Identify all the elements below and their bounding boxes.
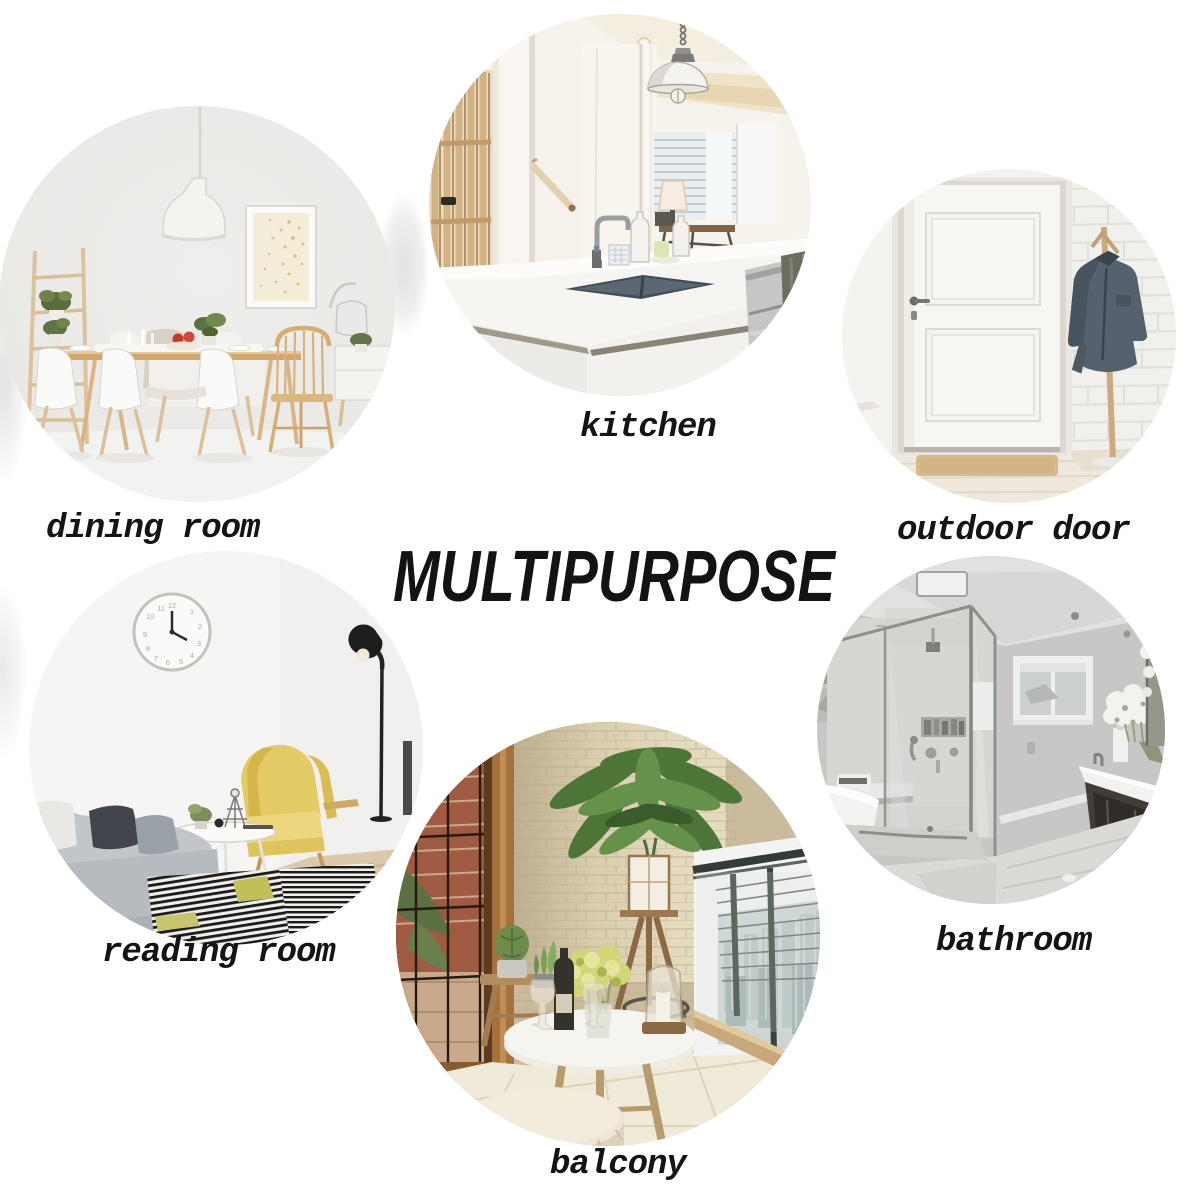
svg-text:3: 3 [197, 639, 201, 648]
svg-text:8: 8 [146, 644, 150, 653]
svg-text:2: 2 [198, 622, 202, 631]
svg-text:4: 4 [190, 651, 194, 660]
svg-text:5: 5 [179, 657, 183, 666]
svg-text:6: 6 [166, 658, 170, 667]
svg-text:9: 9 [143, 630, 147, 639]
svg-text:7: 7 [154, 654, 158, 663]
